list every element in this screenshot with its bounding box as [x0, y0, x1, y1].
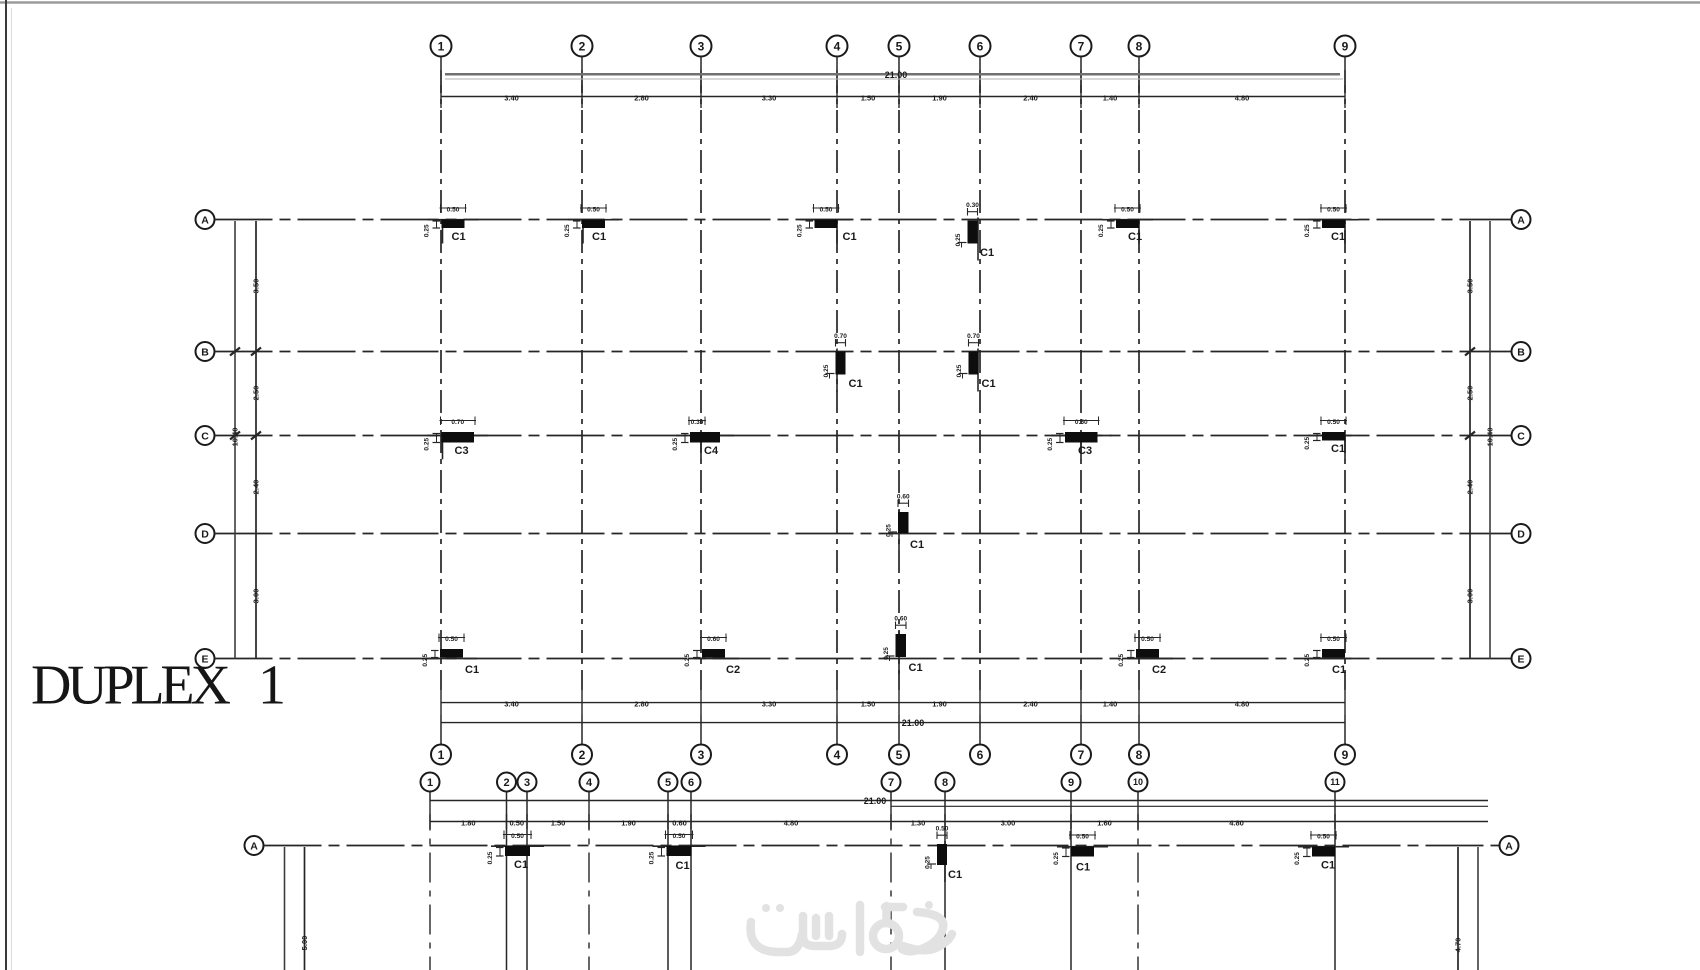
- svg-text:4.70: 4.70: [1454, 938, 1463, 953]
- svg-text:0.25: 0.25: [487, 851, 494, 864]
- svg-text:4.80: 4.80: [1235, 699, 1250, 708]
- svg-text:0.30: 0.30: [966, 202, 979, 209]
- svg-text:0.50: 0.50: [936, 826, 949, 833]
- svg-text:D: D: [201, 528, 209, 540]
- svg-text:1: 1: [438, 748, 445, 762]
- svg-text:7: 7: [888, 777, 894, 789]
- svg-text:0.25: 0.25: [1304, 437, 1311, 450]
- svg-text:C1: C1: [982, 378, 996, 390]
- svg-text:0.25: 0.25: [1118, 654, 1125, 667]
- svg-text:0.25: 0.25: [672, 438, 679, 451]
- svg-text:C3: C3: [455, 445, 469, 457]
- svg-text:3.50: 3.50: [1466, 279, 1475, 294]
- svg-text:6: 6: [977, 39, 984, 53]
- svg-text:21.00: 21.00: [885, 70, 908, 80]
- svg-text:4.80: 4.80: [1229, 818, 1244, 827]
- svg-text:3.30: 3.30: [762, 699, 777, 708]
- svg-text:C2: C2: [1152, 664, 1166, 676]
- svg-text:3.00: 3.00: [1466, 589, 1475, 604]
- svg-text:C: C: [201, 430, 209, 442]
- svg-text:0.25: 0.25: [883, 647, 890, 660]
- svg-text:2.40: 2.40: [1023, 699, 1038, 708]
- svg-text:9: 9: [1342, 39, 1349, 53]
- svg-text:1.90: 1.90: [932, 93, 947, 102]
- svg-text:1.50: 1.50: [861, 93, 876, 102]
- svg-text:4.80: 4.80: [1235, 93, 1250, 102]
- svg-text:3.00: 3.00: [252, 589, 261, 604]
- svg-text:A: A: [1505, 840, 1513, 852]
- svg-text:21.00: 21.00: [864, 796, 887, 806]
- svg-text:0.25: 0.25: [422, 654, 429, 667]
- svg-text:C1: C1: [980, 247, 994, 259]
- svg-text:0.70: 0.70: [834, 333, 847, 340]
- svg-text:C1: C1: [1076, 862, 1090, 874]
- svg-text:C1: C1: [910, 539, 924, 551]
- svg-text:2: 2: [503, 777, 509, 789]
- svg-text:2: 2: [579, 39, 586, 53]
- svg-text:0.25: 0.25: [1304, 224, 1311, 237]
- svg-text:0.25: 0.25: [823, 364, 830, 377]
- svg-text:C4: C4: [704, 445, 719, 457]
- svg-text:7: 7: [1078, 39, 1085, 53]
- svg-text:1: 1: [258, 655, 286, 717]
- svg-text:3.50: 3.50: [252, 279, 261, 294]
- svg-text:C1: C1: [592, 231, 606, 243]
- svg-text:10: 10: [1133, 777, 1143, 787]
- svg-text:A: A: [250, 840, 258, 852]
- svg-text:0.25: 0.25: [886, 524, 893, 537]
- svg-text:5: 5: [896, 39, 903, 53]
- svg-text:21.00: 21.00: [902, 718, 925, 728]
- svg-text:3.00: 3.00: [1001, 818, 1016, 827]
- svg-text:0.25: 0.25: [1294, 852, 1301, 865]
- svg-text:3: 3: [524, 777, 530, 789]
- svg-text:B: B: [201, 346, 209, 358]
- svg-text:0.70: 0.70: [967, 333, 980, 340]
- svg-text:8: 8: [1136, 39, 1143, 53]
- svg-text:0.25: 0.25: [956, 364, 963, 377]
- svg-text:0.25: 0.25: [1098, 224, 1105, 237]
- svg-text:1.90: 1.90: [621, 818, 636, 827]
- svg-text:1.50: 1.50: [551, 818, 566, 827]
- svg-text:2.50: 2.50: [1466, 386, 1475, 401]
- svg-text:4.80: 4.80: [784, 818, 799, 827]
- svg-text:1: 1: [438, 39, 445, 53]
- svg-text:0.25: 0.25: [424, 438, 431, 451]
- svg-text:1.60: 1.60: [1097, 818, 1112, 827]
- svg-text:2.80: 2.80: [634, 699, 649, 708]
- svg-text:A: A: [201, 214, 209, 226]
- svg-text:C1: C1: [849, 378, 863, 390]
- svg-text:4: 4: [834, 39, 841, 53]
- svg-text:0.25: 0.25: [797, 224, 804, 237]
- svg-text:C1: C1: [948, 869, 962, 881]
- svg-text:0.25: 0.25: [1304, 654, 1311, 667]
- svg-text:9: 9: [1068, 777, 1074, 789]
- svg-text:6: 6: [977, 748, 984, 762]
- svg-text:0.25: 0.25: [1053, 852, 1060, 865]
- svg-text:0.25: 0.25: [955, 233, 962, 246]
- svg-text:C: C: [1517, 430, 1525, 442]
- svg-text:3.40: 3.40: [504, 699, 519, 708]
- svg-text:0.60: 0.60: [672, 818, 687, 827]
- svg-text:0.60: 0.60: [894, 616, 907, 623]
- svg-text:5: 5: [896, 748, 903, 762]
- svg-text:3: 3: [698, 39, 705, 53]
- svg-text:C1: C1: [1128, 231, 1142, 243]
- svg-text:1.40: 1.40: [1103, 93, 1118, 102]
- svg-text:8: 8: [942, 777, 948, 789]
- svg-text:2: 2: [579, 748, 586, 762]
- svg-text:C1: C1: [1332, 664, 1346, 676]
- svg-text:11: 11: [1330, 777, 1340, 787]
- svg-text:E: E: [1517, 653, 1524, 665]
- svg-text:2.80: 2.80: [634, 93, 649, 102]
- svg-text:C1: C1: [1321, 860, 1335, 872]
- svg-text:A: A: [1517, 214, 1525, 226]
- svg-text:2.40: 2.40: [1023, 93, 1038, 102]
- svg-text:8: 8: [1136, 748, 1143, 762]
- svg-text:7: 7: [1078, 748, 1085, 762]
- svg-text:DUPLEX: DUPLEX: [31, 655, 230, 717]
- svg-text:0.25: 0.25: [424, 224, 431, 237]
- svg-text:4: 4: [586, 777, 593, 789]
- svg-text:1.50: 1.50: [861, 699, 876, 708]
- svg-text:2.40: 2.40: [1466, 480, 1475, 495]
- svg-text:0.50: 0.50: [509, 818, 524, 827]
- svg-text:C1: C1: [843, 231, 857, 243]
- svg-text:2.50: 2.50: [252, 386, 261, 401]
- svg-text:C1: C1: [676, 860, 690, 872]
- svg-text:D: D: [1517, 528, 1525, 540]
- svg-text:10.40: 10.40: [1486, 428, 1495, 447]
- svg-text:9: 9: [1342, 748, 1349, 762]
- svg-text:C1: C1: [514, 859, 528, 871]
- svg-text:0.25: 0.25: [684, 654, 691, 667]
- svg-text:2.40: 2.40: [252, 480, 261, 495]
- svg-text:C1: C1: [465, 664, 479, 676]
- svg-text:C1: C1: [1331, 443, 1345, 455]
- svg-text:1: 1: [427, 777, 433, 789]
- svg-text:0.25: 0.25: [564, 224, 571, 237]
- svg-text:1.90: 1.90: [932, 699, 947, 708]
- svg-text:0.25: 0.25: [925, 856, 932, 869]
- svg-text:1.40: 1.40: [1103, 699, 1118, 708]
- svg-text:B: B: [1517, 346, 1525, 358]
- svg-text:4: 4: [834, 748, 841, 762]
- svg-text:3: 3: [698, 748, 705, 762]
- svg-text:C3: C3: [1078, 445, 1092, 457]
- svg-text:0.25: 0.25: [649, 851, 656, 864]
- svg-text:1.30: 1.30: [911, 818, 926, 827]
- svg-text:5: 5: [665, 777, 671, 789]
- svg-text:3.40: 3.40: [504, 93, 519, 102]
- svg-text:C1: C1: [1331, 231, 1345, 243]
- svg-text:1.80: 1.80: [461, 818, 476, 827]
- svg-text:5.00: 5.00: [300, 936, 309, 951]
- svg-text:6: 6: [688, 777, 694, 789]
- svg-text:C1: C1: [909, 662, 923, 674]
- svg-text:C1: C1: [452, 231, 466, 243]
- svg-text:3.30: 3.30: [762, 93, 777, 102]
- svg-text:0.25: 0.25: [1047, 438, 1054, 451]
- svg-text:C2: C2: [726, 664, 740, 676]
- svg-text:0.60: 0.60: [897, 494, 910, 501]
